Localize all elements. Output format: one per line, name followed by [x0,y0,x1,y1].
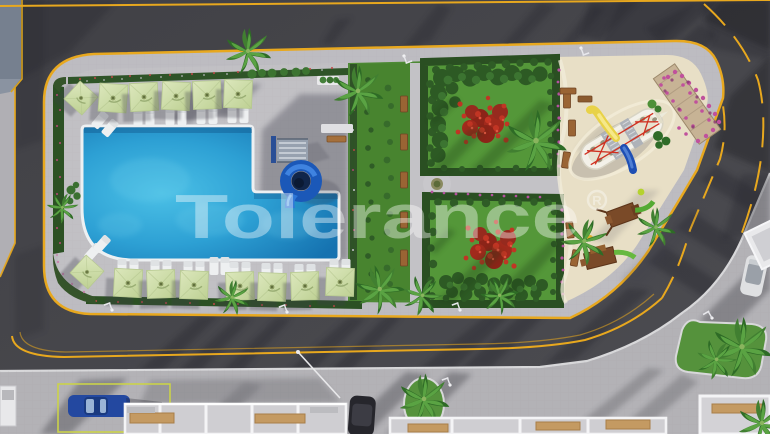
svg-text:R: R [592,193,602,208]
svg-text:Tolerance: Tolerance [175,183,580,252]
